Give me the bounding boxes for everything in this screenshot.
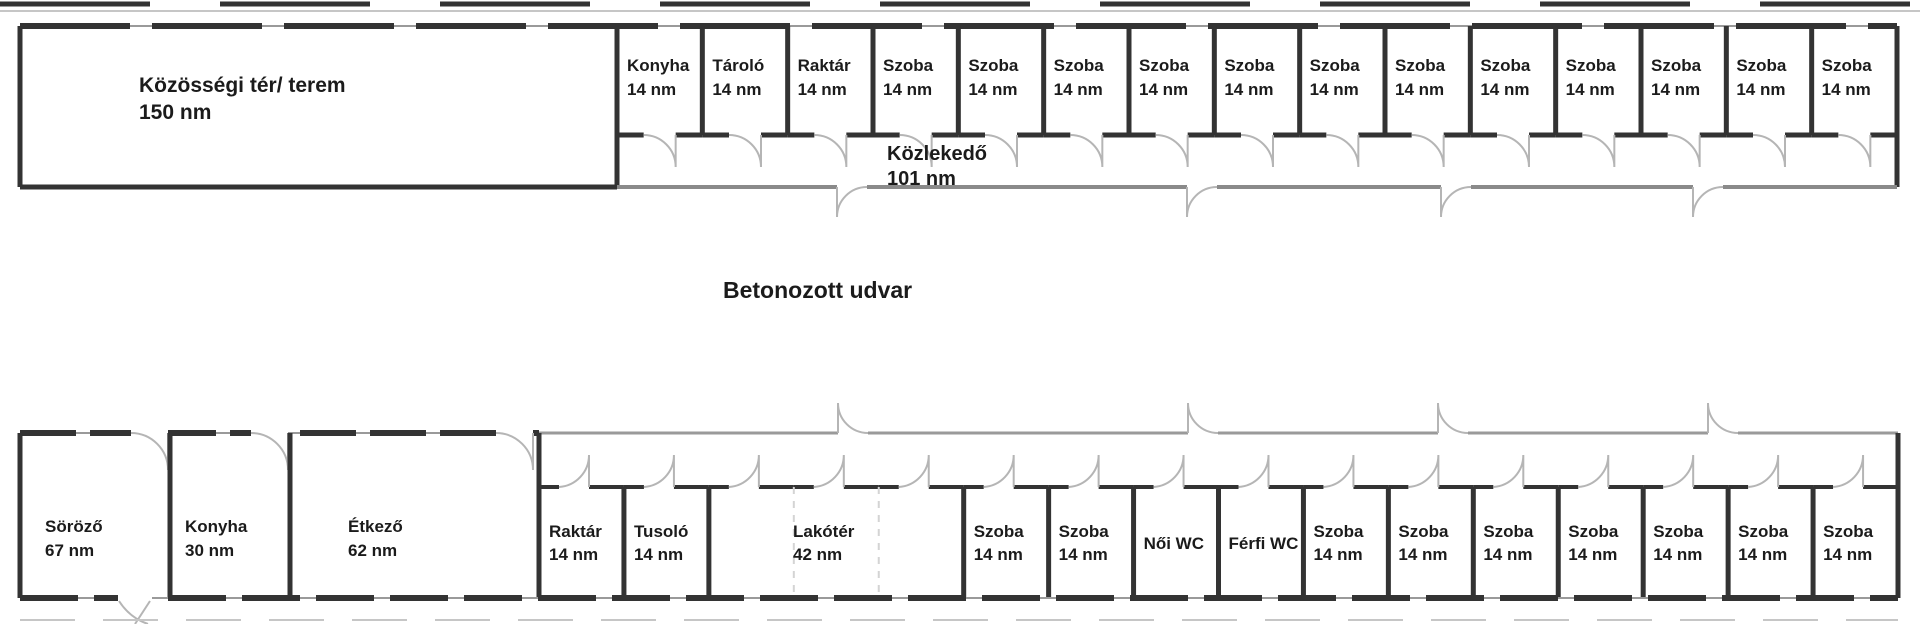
room-name: Szoba <box>1738 522 1789 541</box>
room-area: 14 nm <box>1738 545 1787 564</box>
room-name: Szoba <box>1480 56 1531 75</box>
room-area: 14 nm <box>1224 80 1273 99</box>
room-area: 14 nm <box>974 545 1023 564</box>
room-area: 14 nm <box>1736 80 1785 99</box>
room-name: Tusoló <box>634 522 688 541</box>
room-name: Szoba <box>1139 56 1190 75</box>
room-area: 14 nm <box>1823 545 1872 564</box>
room-name: Raktár <box>549 522 602 541</box>
room-area: 14 nm <box>1313 545 1362 564</box>
room-name: Szoba <box>1653 522 1704 541</box>
room-area: 14 nm <box>549 545 598 564</box>
hall-name: Közösségi tér/ terem <box>139 72 346 99</box>
room-name: Szoba <box>1395 56 1446 75</box>
room-name: Szoba <box>1059 522 1110 541</box>
room-name: Szoba <box>1310 56 1361 75</box>
room-area: 14 nm <box>1054 80 1103 99</box>
room-name: Szoba <box>1736 56 1787 75</box>
room-area: 14 nm <box>1310 80 1359 99</box>
room-area: 14 nm <box>712 80 761 99</box>
room-area: 62 nm <box>348 541 397 560</box>
room-name: Férfi WC <box>1229 534 1299 553</box>
room-name: Szoba <box>1483 522 1534 541</box>
room-name: Szoba <box>1822 56 1873 75</box>
room-area: 14 nm <box>968 80 1017 99</box>
room-name: Szoba <box>1224 56 1275 75</box>
room-name: Szoba <box>1398 522 1449 541</box>
room-area: 14 nm <box>1822 80 1871 99</box>
room-area: 67 nm <box>45 541 94 560</box>
room-area: 14 nm <box>1483 545 1532 564</box>
room-name: Szoba <box>883 56 934 75</box>
room-area: 14 nm <box>1653 545 1702 564</box>
room-area: 14 nm <box>1139 80 1188 99</box>
corridor-area: 101 nm <box>887 167 987 192</box>
room-name: Szoba <box>1054 56 1105 75</box>
room-area: 14 nm <box>1568 545 1617 564</box>
room-area: 30 nm <box>185 541 234 560</box>
room-name: Szoba <box>1823 522 1874 541</box>
room-name: Szoba <box>1313 522 1364 541</box>
room-name: Szoba <box>1566 56 1617 75</box>
room-name: Szoba <box>974 522 1025 541</box>
room-area: 14 nm <box>1395 80 1444 99</box>
room-name: Lakótér <box>793 522 855 541</box>
room-area: 14 nm <box>1398 545 1447 564</box>
room-name: Étkező <box>348 517 403 536</box>
room-area: 14 nm <box>1651 80 1700 99</box>
door-gap <box>118 593 152 603</box>
room-name: Női WC <box>1144 534 1204 553</box>
courtyard-label: Betonozott udvar <box>723 277 912 303</box>
room-name: Konyha <box>627 56 690 75</box>
corridor-label: Közlekedő 101 nm <box>887 142 987 192</box>
room-name: Tároló <box>712 56 764 75</box>
room-name: Szoba <box>1568 522 1619 541</box>
room-area: 14 nm <box>634 545 683 564</box>
room-name: Konyha <box>185 517 248 536</box>
room-name: Söröző <box>45 517 103 536</box>
corridor-name: Közlekedő <box>887 142 987 167</box>
room-area: 14 nm <box>627 80 676 99</box>
room-area: 14 nm <box>798 80 847 99</box>
room-area: 14 nm <box>1480 80 1529 99</box>
room-area: 14 nm <box>883 80 932 99</box>
floor-plan: Konyha14 nmTároló14 nmRaktár14 nmSzoba14… <box>0 0 1920 624</box>
hall-label: Közösségi tér/ terem 150 nm <box>139 72 346 126</box>
room-name: Szoba <box>1651 56 1702 75</box>
room-area: 42 nm <box>793 545 842 564</box>
room-name: Raktár <box>798 56 851 75</box>
room-name: Szoba <box>968 56 1019 75</box>
room-area: 14 nm <box>1566 80 1615 99</box>
room-area: 14 nm <box>1059 545 1108 564</box>
hall-area: 150 nm <box>139 99 346 126</box>
